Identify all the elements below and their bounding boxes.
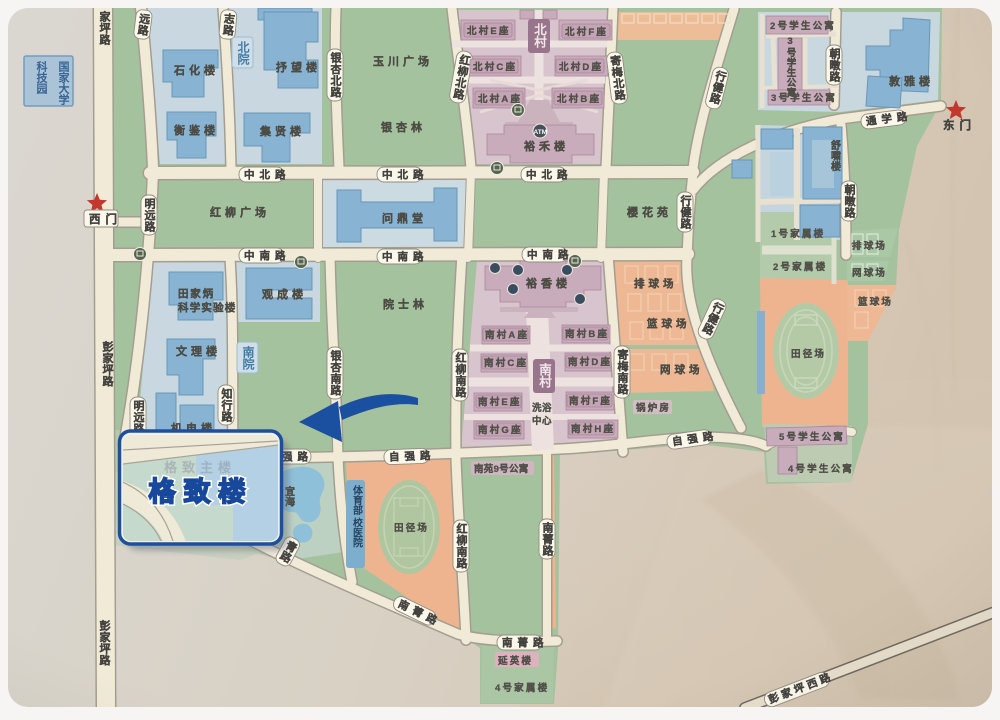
svg-text:格致主楼: 格致主楼 — [164, 460, 236, 475]
